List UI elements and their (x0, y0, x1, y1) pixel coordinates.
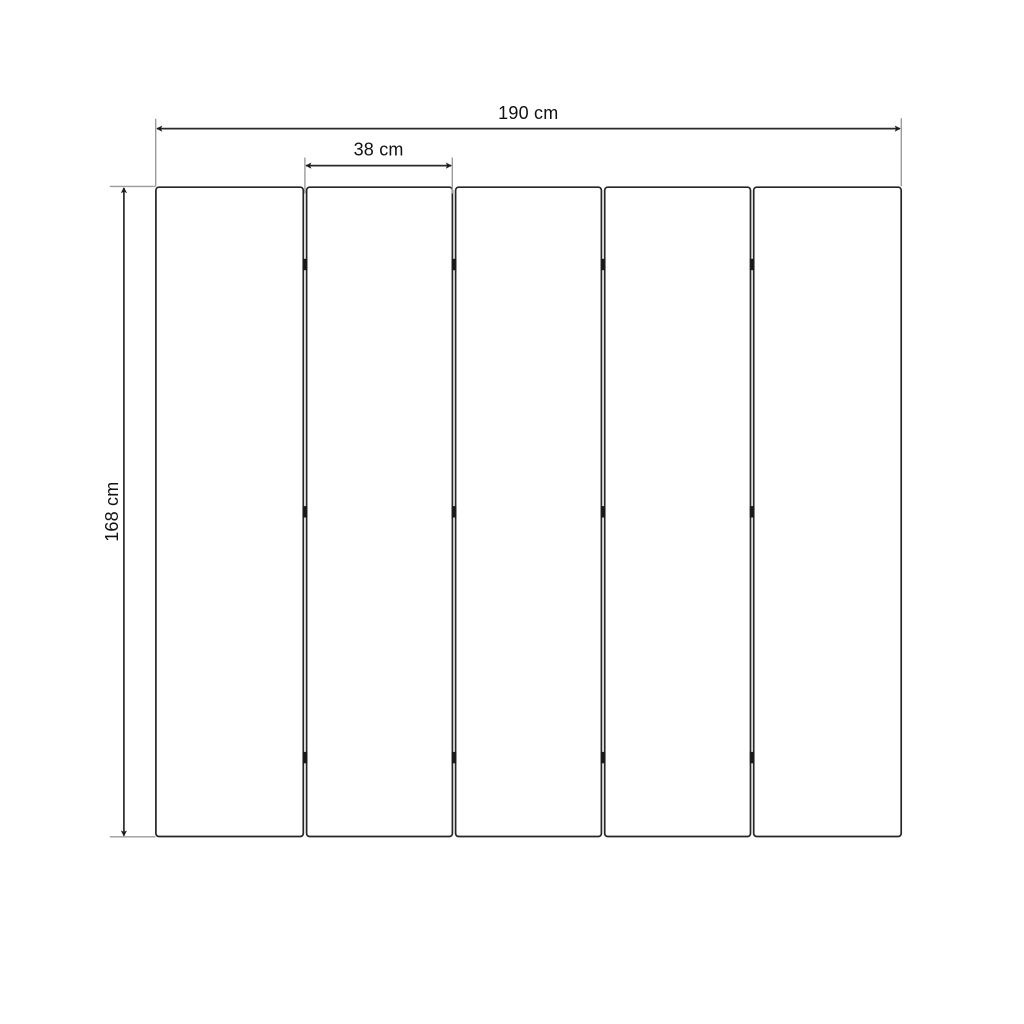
svg-text:38 cm: 38 cm (354, 140, 404, 160)
svg-text:168 cm: 168 cm (102, 482, 122, 542)
svg-text:190 cm: 190 cm (498, 103, 558, 123)
